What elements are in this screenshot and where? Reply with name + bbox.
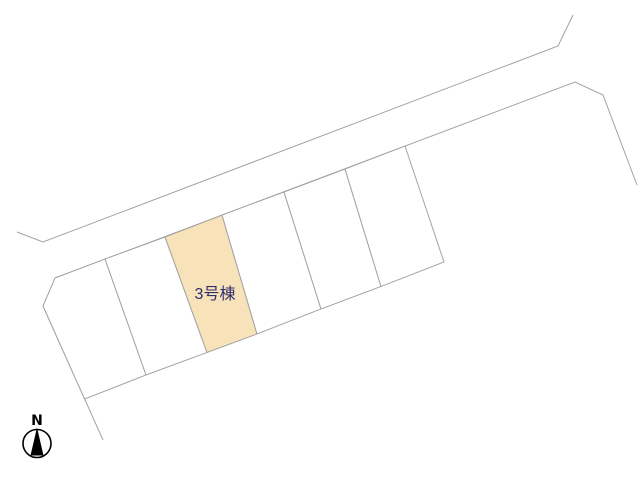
highlighted-lot-label: 3号棟 bbox=[195, 285, 236, 303]
compass-north-label: N bbox=[31, 413, 43, 429]
lot-polygons bbox=[43, 146, 444, 399]
compass-needle-icon bbox=[31, 428, 44, 456]
site-plan-canvas: 3号棟 N bbox=[0, 0, 640, 480]
compass: N bbox=[23, 413, 51, 458]
site-plan-drawing: 3号棟 N bbox=[0, 0, 640, 480]
